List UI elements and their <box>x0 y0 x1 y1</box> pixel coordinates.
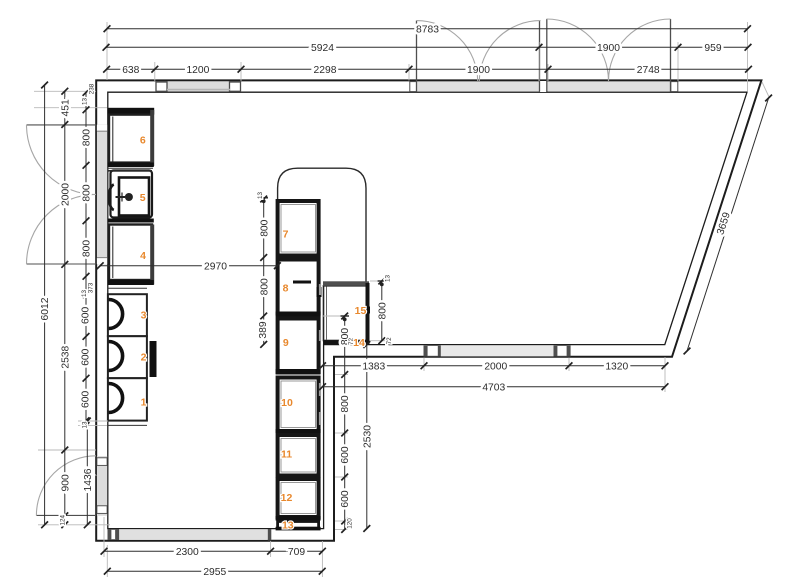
svg-text:14: 14 <box>353 337 365 349</box>
svg-text:13: 13 <box>257 192 264 200</box>
svg-text:2748: 2748 <box>637 65 660 76</box>
svg-text:600: 600 <box>81 348 92 365</box>
svg-text:120: 120 <box>346 518 353 529</box>
svg-text:5924: 5924 <box>311 43 334 54</box>
svg-text:2970: 2970 <box>204 261 227 272</box>
svg-text:13: 13 <box>82 98 89 106</box>
svg-text:600: 600 <box>81 307 92 324</box>
svg-text:13: 13 <box>385 275 392 283</box>
svg-text:2530: 2530 <box>362 425 373 448</box>
svg-text:638: 638 <box>122 65 139 76</box>
svg-text:800: 800 <box>82 240 93 257</box>
svg-text:6012: 6012 <box>40 297 51 320</box>
svg-text:800: 800 <box>340 395 351 412</box>
svg-text:959: 959 <box>704 43 721 54</box>
svg-text:8783: 8783 <box>416 24 439 35</box>
svg-text:1436: 1436 <box>83 468 94 491</box>
svg-text:4703: 4703 <box>482 382 505 393</box>
svg-text:2000: 2000 <box>484 361 507 372</box>
svg-text:2000: 2000 <box>60 183 71 206</box>
svg-text:800: 800 <box>259 278 270 295</box>
svg-text:12: 12 <box>281 492 293 504</box>
svg-text:600: 600 <box>340 446 351 463</box>
svg-text:1200: 1200 <box>186 65 209 76</box>
svg-text:11: 11 <box>281 448 292 460</box>
svg-text:800: 800 <box>377 302 388 319</box>
svg-text:1900: 1900 <box>597 43 620 54</box>
svg-text:7: 7 <box>283 229 289 241</box>
svg-text:1383: 1383 <box>362 361 385 372</box>
svg-text:900: 900 <box>60 474 71 491</box>
svg-text:2538: 2538 <box>60 345 71 368</box>
svg-text:13: 13 <box>82 421 89 429</box>
svg-text:2300: 2300 <box>176 547 199 558</box>
svg-text:1320: 1320 <box>605 361 628 372</box>
svg-text:5: 5 <box>140 192 146 204</box>
svg-text:600: 600 <box>81 391 92 408</box>
svg-text:15: 15 <box>355 305 367 317</box>
svg-text:4: 4 <box>140 250 146 262</box>
svg-text:800: 800 <box>82 129 93 146</box>
svg-text:6: 6 <box>140 134 146 146</box>
svg-text:373: 373 <box>87 282 94 293</box>
svg-text:9: 9 <box>283 337 289 349</box>
svg-text:3: 3 <box>141 310 147 322</box>
svg-text:709: 709 <box>288 547 305 558</box>
svg-text:2955: 2955 <box>203 567 226 578</box>
svg-text:13: 13 <box>282 519 294 531</box>
svg-text:800: 800 <box>259 219 270 236</box>
svg-text:2: 2 <box>141 352 147 364</box>
svg-text:2298: 2298 <box>314 65 337 76</box>
svg-text:389: 389 <box>258 321 269 338</box>
svg-text:72: 72 <box>386 337 393 345</box>
svg-text:600: 600 <box>340 490 351 507</box>
svg-text:1: 1 <box>141 397 147 409</box>
svg-text:800: 800 <box>82 184 93 201</box>
svg-text:451: 451 <box>60 99 71 116</box>
svg-text:238: 238 <box>88 83 95 94</box>
svg-text:124: 124 <box>59 515 66 526</box>
svg-text:1900: 1900 <box>467 65 490 76</box>
svg-text:10: 10 <box>281 397 293 409</box>
svg-text:8: 8 <box>283 283 289 295</box>
